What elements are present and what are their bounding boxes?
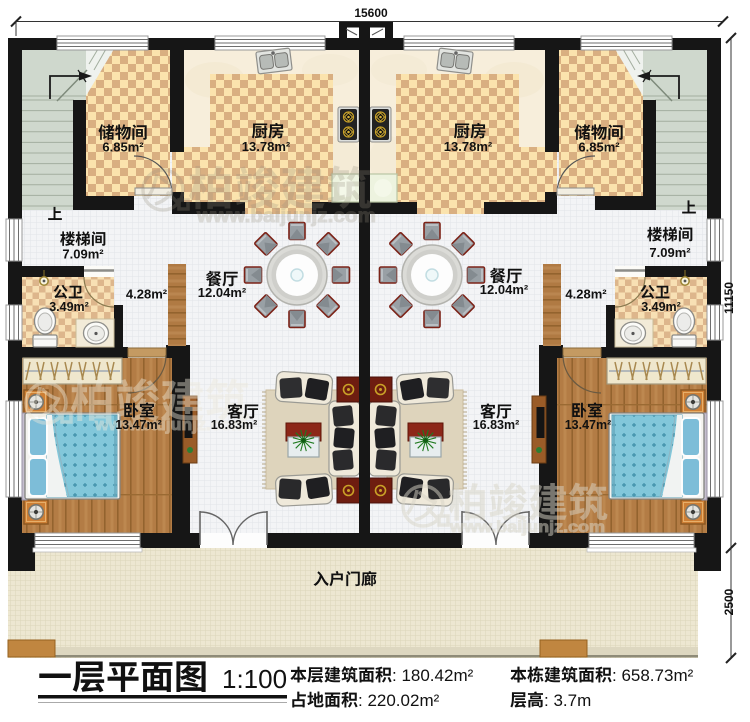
svg-text:1:100: 1:100: [222, 664, 287, 694]
svg-text:: 180.42m²: : 180.42m²: [392, 666, 474, 685]
svg-text:4.28m²: 4.28m²: [126, 287, 168, 302]
svg-text:15600: 15600: [354, 6, 388, 20]
svg-text:www.baijunjz.com: www.baijunjz.com: [196, 206, 376, 227]
svg-text:3.49m²: 3.49m²: [49, 300, 89, 314]
svg-text:13.78m²: 13.78m²: [444, 139, 493, 154]
svg-text:: 220.02m²: : 220.02m²: [358, 691, 440, 710]
svg-text:www.baijunjz.com: www.baijunjz.com: [449, 519, 605, 536]
svg-text:6.85m²: 6.85m²: [102, 140, 144, 155]
svg-text:6.85m²: 6.85m²: [578, 140, 620, 155]
svg-text:16.83m²: 16.83m²: [473, 418, 520, 432]
svg-text:: 3.7m: : 3.7m: [544, 691, 591, 710]
svg-text:13.47m²: 13.47m²: [565, 418, 612, 432]
svg-text:: 658.73m²: : 658.73m²: [612, 666, 694, 685]
svg-text:16.83m²: 16.83m²: [211, 418, 258, 432]
svg-text:11150: 11150: [722, 282, 736, 314]
svg-text:13.47m²: 13.47m²: [115, 418, 162, 432]
svg-text:12.04m²: 12.04m²: [480, 282, 529, 297]
svg-text:12.04m²: 12.04m²: [198, 285, 247, 300]
svg-text:7.09m²: 7.09m²: [62, 247, 104, 262]
svg-text:4.28m²: 4.28m²: [565, 287, 607, 302]
svg-text:3.49m²: 3.49m²: [641, 300, 681, 314]
svg-text:2500: 2500: [722, 588, 736, 615]
svg-text:13.78m²: 13.78m²: [242, 139, 291, 154]
svg-text:7.09m²: 7.09m²: [649, 245, 691, 260]
